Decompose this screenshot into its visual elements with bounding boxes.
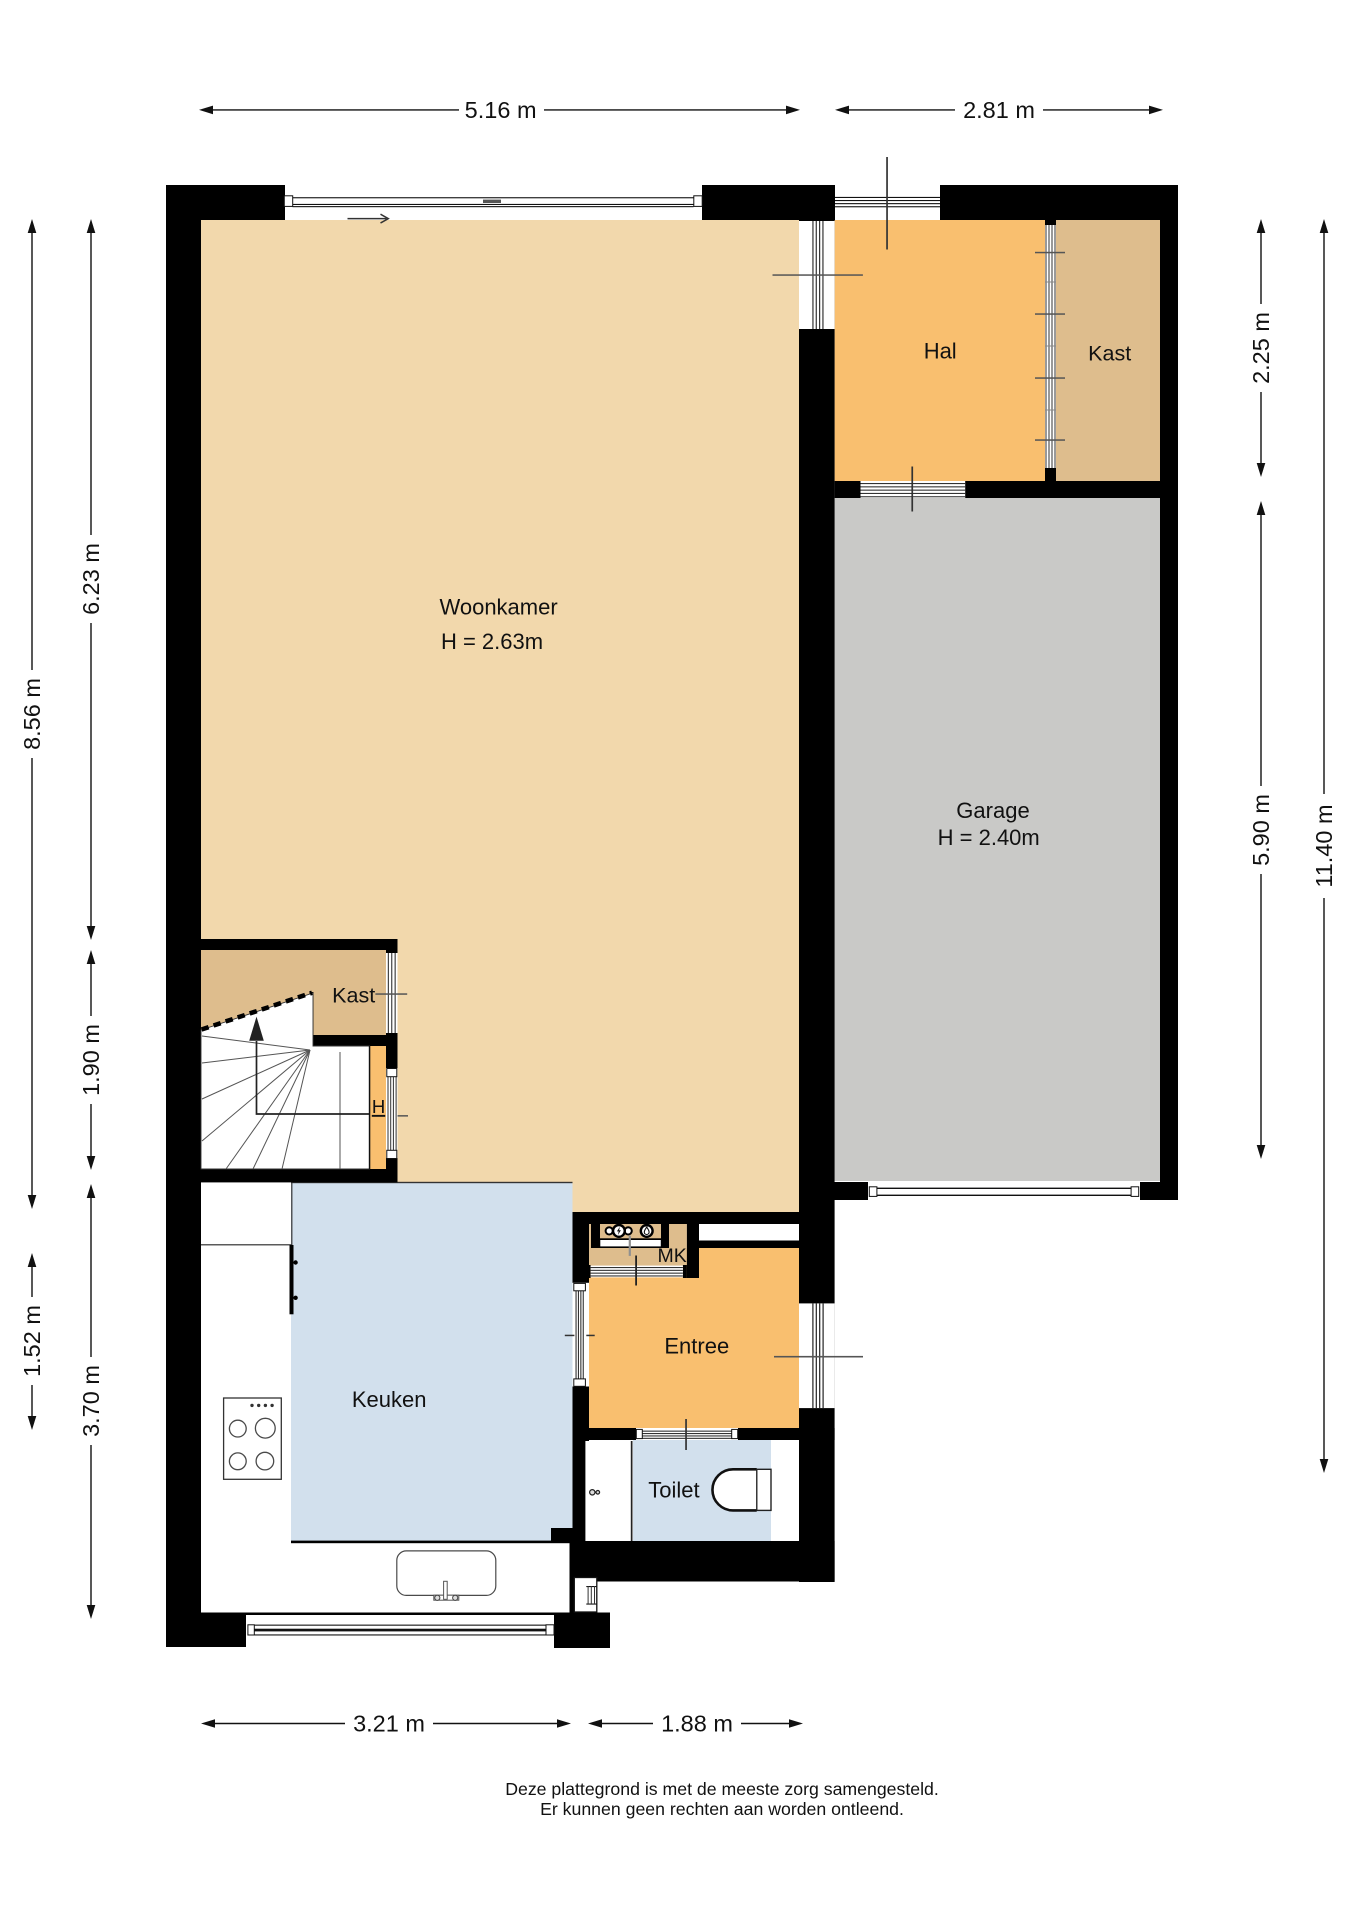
svg-text:6.23 m: 6.23 m xyxy=(78,543,104,615)
svg-text:5.90 m: 5.90 m xyxy=(1248,794,1274,866)
svg-text:3.21 m: 3.21 m xyxy=(353,1711,425,1737)
svg-text:Er kunnen geen rechten aan wor: Er kunnen geen rechten aan worden ontlee… xyxy=(540,1799,904,1819)
svg-text:H = 2.40m: H = 2.40m xyxy=(938,825,1040,850)
svg-text:Hal: Hal xyxy=(924,339,957,364)
svg-text:Garage: Garage xyxy=(956,798,1029,823)
svg-text:1.90 m: 1.90 m xyxy=(78,1024,104,1096)
svg-text:Toilet: Toilet xyxy=(648,1478,699,1503)
svg-text:Woonkamer: Woonkamer xyxy=(439,595,557,620)
svg-text:8.56 m: 8.56 m xyxy=(19,678,45,750)
svg-text:3.70 m: 3.70 m xyxy=(78,1365,104,1437)
svg-text:H = 2.63m: H = 2.63m xyxy=(441,629,543,654)
svg-text:Kast: Kast xyxy=(1088,342,1131,366)
svg-text:1.52 m: 1.52 m xyxy=(19,1305,45,1377)
svg-text:Entree: Entree xyxy=(664,1334,729,1359)
svg-text:5.16 m: 5.16 m xyxy=(465,97,537,123)
svg-text:1.88 m: 1.88 m xyxy=(661,1711,733,1737)
svg-text:Deze plattegrond is met de mee: Deze plattegrond is met de meeste zorg s… xyxy=(505,1779,939,1799)
svg-text:2.25 m: 2.25 m xyxy=(1248,312,1274,384)
svg-text:Keuken: Keuken xyxy=(352,1387,427,1412)
svg-text:H: H xyxy=(372,1096,385,1117)
svg-text:11.40 m: 11.40 m xyxy=(1311,804,1337,887)
svg-text:2.81 m: 2.81 m xyxy=(963,97,1035,123)
svg-text:MK: MK xyxy=(657,1245,686,1267)
svg-text:Kast: Kast xyxy=(332,983,375,1007)
